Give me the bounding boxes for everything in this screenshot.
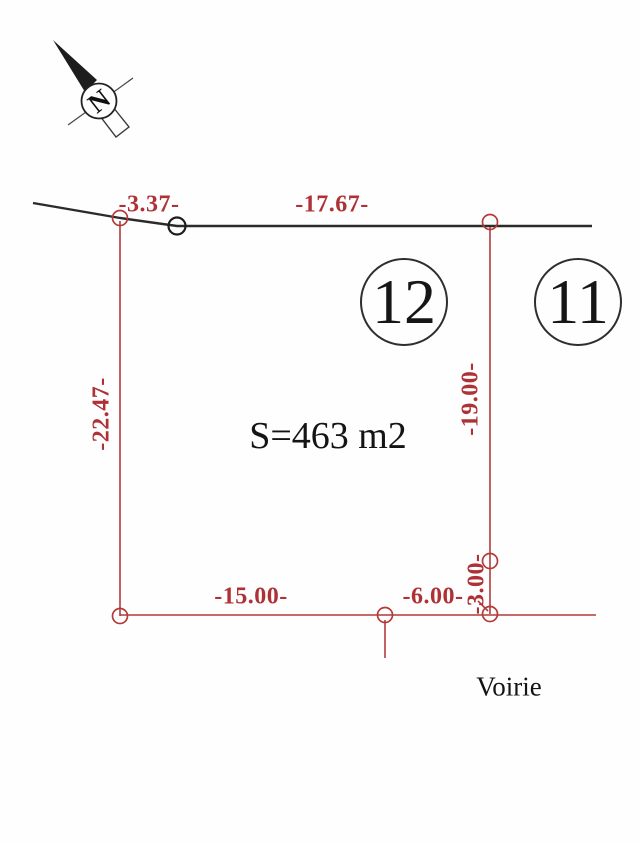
dimension-top-offset: -3.37-: [119, 192, 180, 219]
compass-needle-icon: [53, 40, 97, 92]
dimension-west-side: -22.47-: [89, 377, 116, 450]
parcel-number-12-label: 12: [372, 270, 436, 334]
dimension-south-width: -15.00-: [214, 584, 287, 611]
parcel-number-12: 12: [360, 258, 448, 346]
dimension-east-small: -3.00-: [464, 554, 491, 615]
road-label: Voirie: [476, 672, 542, 703]
survey-plan-canvas: N -3.37- -17.67- -22.47- -19.00- -15.00-…: [0, 0, 640, 842]
area-label: S=463 m2: [249, 414, 407, 458]
dimension-east-side: -19.00-: [458, 362, 485, 435]
dimension-top-width: -17.67-: [295, 192, 368, 219]
dimension-south-offset: -6.00-: [403, 584, 464, 611]
parcel-number-11-label: 11: [547, 270, 609, 334]
north-arrow: N: [53, 40, 133, 137]
parcel-number-11: 11: [534, 258, 622, 346]
